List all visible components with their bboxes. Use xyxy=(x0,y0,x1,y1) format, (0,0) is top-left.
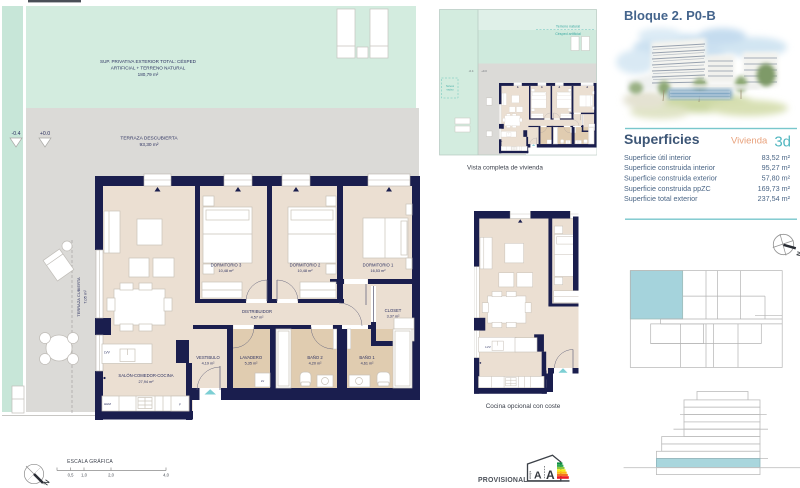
svg-text:Superficie total exterior: Superficie total exterior xyxy=(624,194,698,203)
svg-text:DORMITORIO 1: DORMITORIO 1 xyxy=(363,263,394,268)
svg-text:SUP. PRIVATIVA EXTERIOR TOTAL:: SUP. PRIVATIVA EXTERIOR TOTAL: CÉSPED xyxy=(100,58,197,64)
svg-text:TERRAZA DESCUBIERTA: TERRAZA DESCUBIERTA xyxy=(120,136,178,142)
svg-text:F: F xyxy=(179,403,181,407)
svg-text:+0.0: +0.0 xyxy=(481,69,487,73)
svg-text:4,57 m²: 4,57 m² xyxy=(251,316,265,320)
svg-text:4,61 m²: 4,61 m² xyxy=(361,362,375,366)
svg-text:-0.4: -0.4 xyxy=(469,69,474,73)
svg-text:93,30 m²: 93,30 m² xyxy=(140,142,159,148)
svg-text:27,94 m²: 27,94 m² xyxy=(139,380,155,384)
svg-text:LAVADERO: LAVADERO xyxy=(240,355,263,360)
svg-text:Superficie construida ppZC: Superficie construida ppZC xyxy=(624,184,711,193)
svg-text:BAÑO 2: BAÑO 2 xyxy=(307,355,323,360)
svg-text:LVV: LVV xyxy=(485,345,490,349)
svg-text:180,79 m²: 180,79 m² xyxy=(138,72,159,77)
svg-text:CLOSET: CLOSET xyxy=(385,308,402,313)
svg-text:4,19 m²: 4,19 m² xyxy=(202,362,216,366)
svg-text:+0.0: +0.0 xyxy=(40,131,50,137)
svg-text:5,35 m²: 5,35 m² xyxy=(245,362,259,366)
svg-text:LVV: LVV xyxy=(104,351,111,355)
svg-text:VESTIBULO: VESTIBULO xyxy=(196,355,220,360)
svg-text:3d: 3d xyxy=(774,134,791,151)
svg-text:Vivienda: Vivienda xyxy=(731,136,768,147)
svg-text:Terreno natural: Terreno natural xyxy=(556,25,580,29)
svg-text:vecino: vecino xyxy=(447,89,455,92)
svg-text:3,37 m²: 3,37 m² xyxy=(387,315,401,319)
svg-text:LV: LV xyxy=(261,379,264,383)
svg-text:Césped artificial: Césped artificial xyxy=(555,32,581,36)
svg-text:PROVISIONAL: PROVISIONAL xyxy=(478,477,528,484)
svg-text:BAÑO 1: BAÑO 1 xyxy=(359,355,375,360)
svg-text:HHM: HHM xyxy=(104,402,111,406)
svg-text:10,48 m²: 10,48 m² xyxy=(298,269,314,273)
svg-text:4,20 m²: 4,20 m² xyxy=(309,362,323,366)
svg-text:Superficie útil interior: Superficie útil interior xyxy=(624,153,692,162)
svg-text:energía: energía xyxy=(529,470,532,479)
svg-text:DISTRIBUIDOR: DISTRIBUIDOR xyxy=(242,309,272,314)
svg-text:237,54 m²: 237,54 m² xyxy=(758,194,791,203)
svg-text:-0.4: -0.4 xyxy=(12,131,21,137)
svg-text:7,05 m²: 7,05 m² xyxy=(83,290,88,304)
svg-text:Cocina opcional con coste: Cocina opcional con coste xyxy=(486,403,561,410)
svg-text:A: A xyxy=(546,468,555,482)
svg-text:Bloque 2. P0-B: Bloque 2. P0-B xyxy=(624,8,716,23)
svg-text:4,0: 4,0 xyxy=(163,473,169,478)
svg-text:0,5: 0,5 xyxy=(68,473,74,478)
svg-text:Superficie construida interior: Superficie construida interior xyxy=(624,163,716,172)
svg-text:Superficies: Superficies xyxy=(624,131,700,147)
svg-text:95,27 m²: 95,27 m² xyxy=(762,163,791,172)
svg-text:Vista completa de vivienda: Vista completa de vivienda xyxy=(467,165,543,172)
svg-text:SALÓN-COMEDOR-COCINA: SALÓN-COMEDOR-COCINA xyxy=(118,373,173,378)
svg-text:10,48 m²: 10,48 m² xyxy=(219,269,235,273)
svg-text:A: A xyxy=(534,470,542,482)
svg-text:Superficie construida exterior: Superficie construida exterior xyxy=(624,173,718,182)
svg-text:57,80 m²: 57,80 m² xyxy=(762,173,791,182)
svg-text:TERRAZA CUBIERTA: TERRAZA CUBIERTA xyxy=(76,277,81,317)
svg-text:1,0: 1,0 xyxy=(81,473,87,478)
svg-text:2,0: 2,0 xyxy=(108,473,114,478)
svg-text:DORMITORIO 3: DORMITORIO 3 xyxy=(211,263,242,268)
svg-text:16,53 m²: 16,53 m² xyxy=(371,269,387,273)
svg-text:169,73 m²: 169,73 m² xyxy=(758,184,791,193)
svg-text:83,52 m²: 83,52 m² xyxy=(762,153,791,162)
svg-text:ESCALA GRÁFICA: ESCALA GRÁFICA xyxy=(67,458,113,465)
svg-text:ARTIFICIAL + TERRENO NATURAL: ARTIFICIAL + TERRENO NATURAL xyxy=(111,66,186,71)
svg-text:DORMITORIO 2: DORMITORIO 2 xyxy=(290,263,321,268)
